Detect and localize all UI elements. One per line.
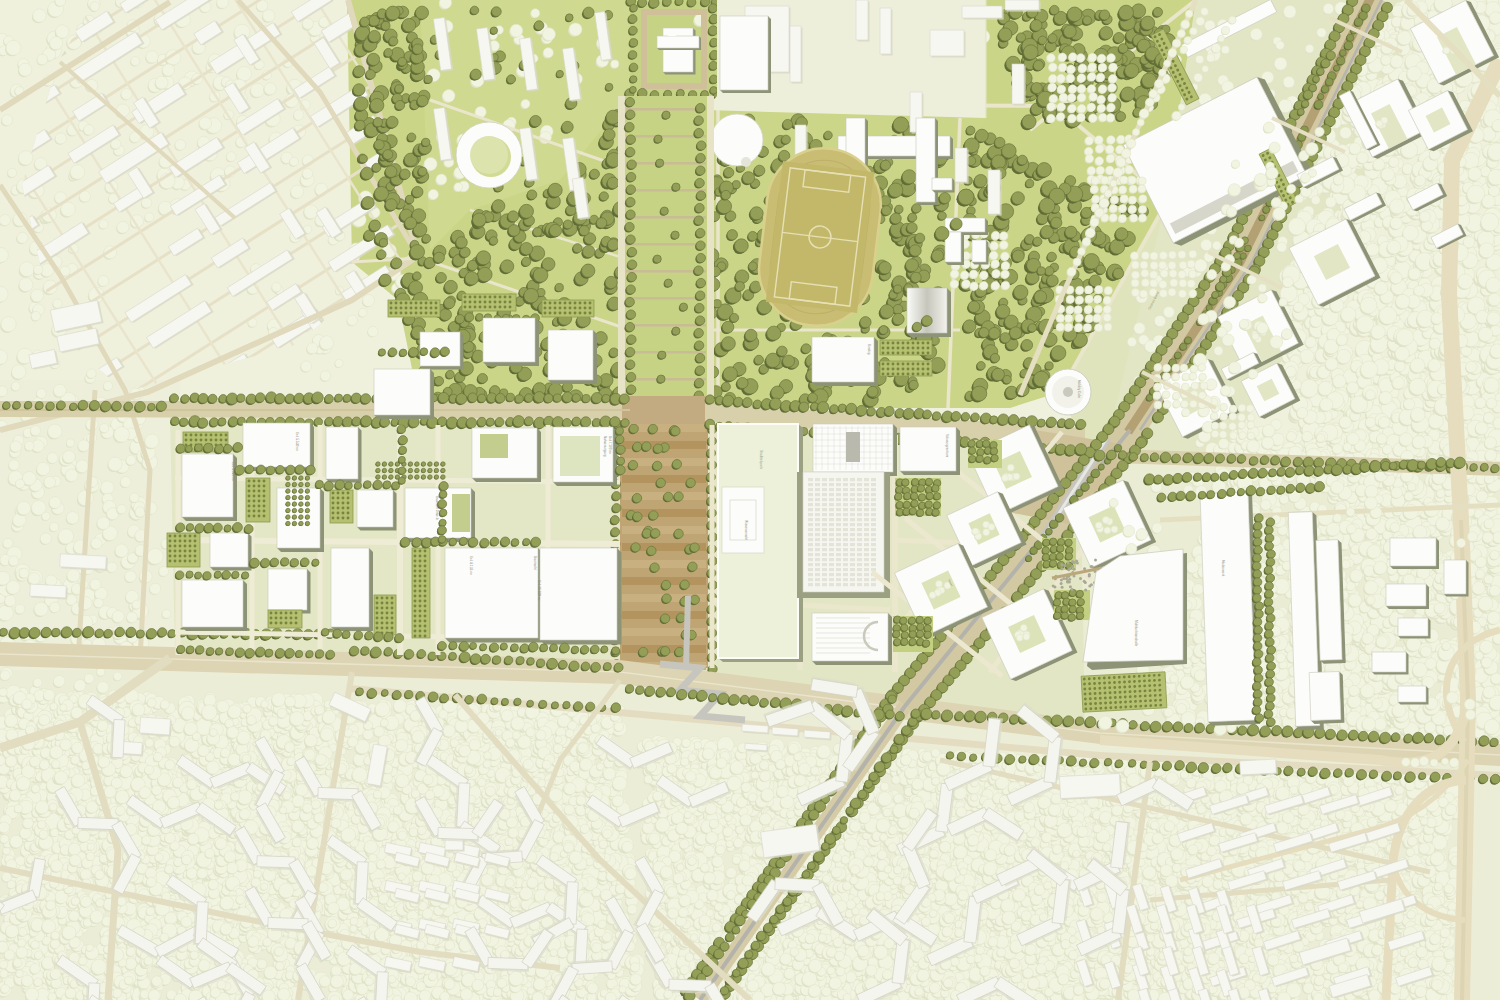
svg-text:Baumarkt Drive-In: Baumarkt Drive-In [435,496,439,521]
svg-text:Grd 8.133 m²: Grd 8.133 m² [469,556,473,575]
svg-text:Grd 36.500 m²: Grd 36.500 m² [537,580,541,601]
svg-text:Medienwerk: Medienwerk [1221,560,1225,577]
svg-text:Stadtteilpark: Stadtteilpark [759,450,763,469]
svg-text:Mobility Cube: Mobility Cube [1077,380,1081,399]
svg-text:Grd 5.020 m²: Grd 5.020 m² [231,462,235,481]
svg-text:Baumarkt: Baumarkt [533,556,537,570]
svg-text:Grd 5.530 m²: Grd 5.530 m² [295,432,299,451]
svg-text:Bowling: Bowling [867,344,871,355]
svg-text:Nahversorgung: Nahversorgung [603,436,607,457]
svg-text:Grd 7.100 m²: Grd 7.100 m² [608,436,612,454]
svg-text:Wissensmarkt: Wissensmarkt [744,520,748,540]
svg-text:Schwungzentrum: Schwungzentrum [945,434,949,458]
svg-text:Multifunktionshalle: Multifunktionshalle [1134,620,1138,646]
